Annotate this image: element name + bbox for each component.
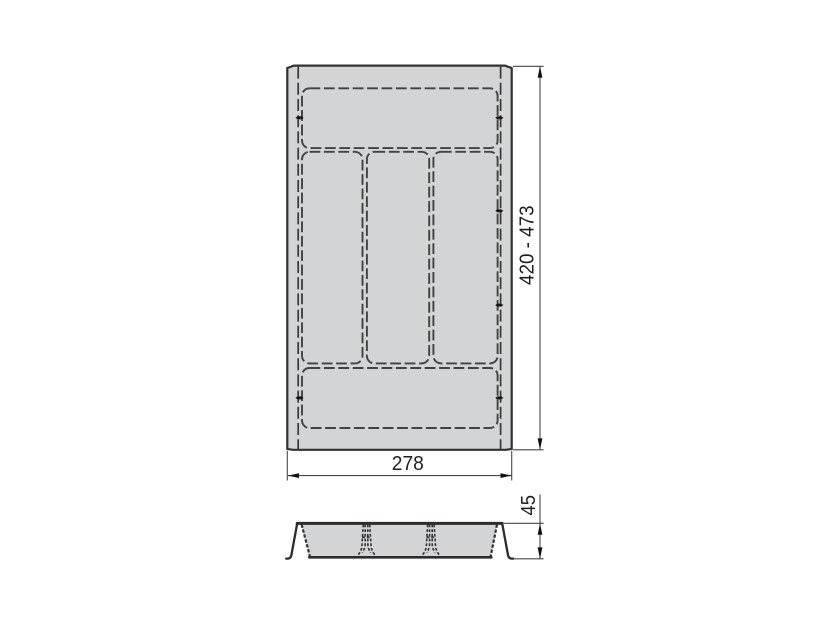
- svg-text:278: 278: [392, 453, 424, 475]
- svg-text:420 - 473: 420 - 473: [517, 205, 539, 285]
- svg-text:45: 45: [518, 495, 540, 516]
